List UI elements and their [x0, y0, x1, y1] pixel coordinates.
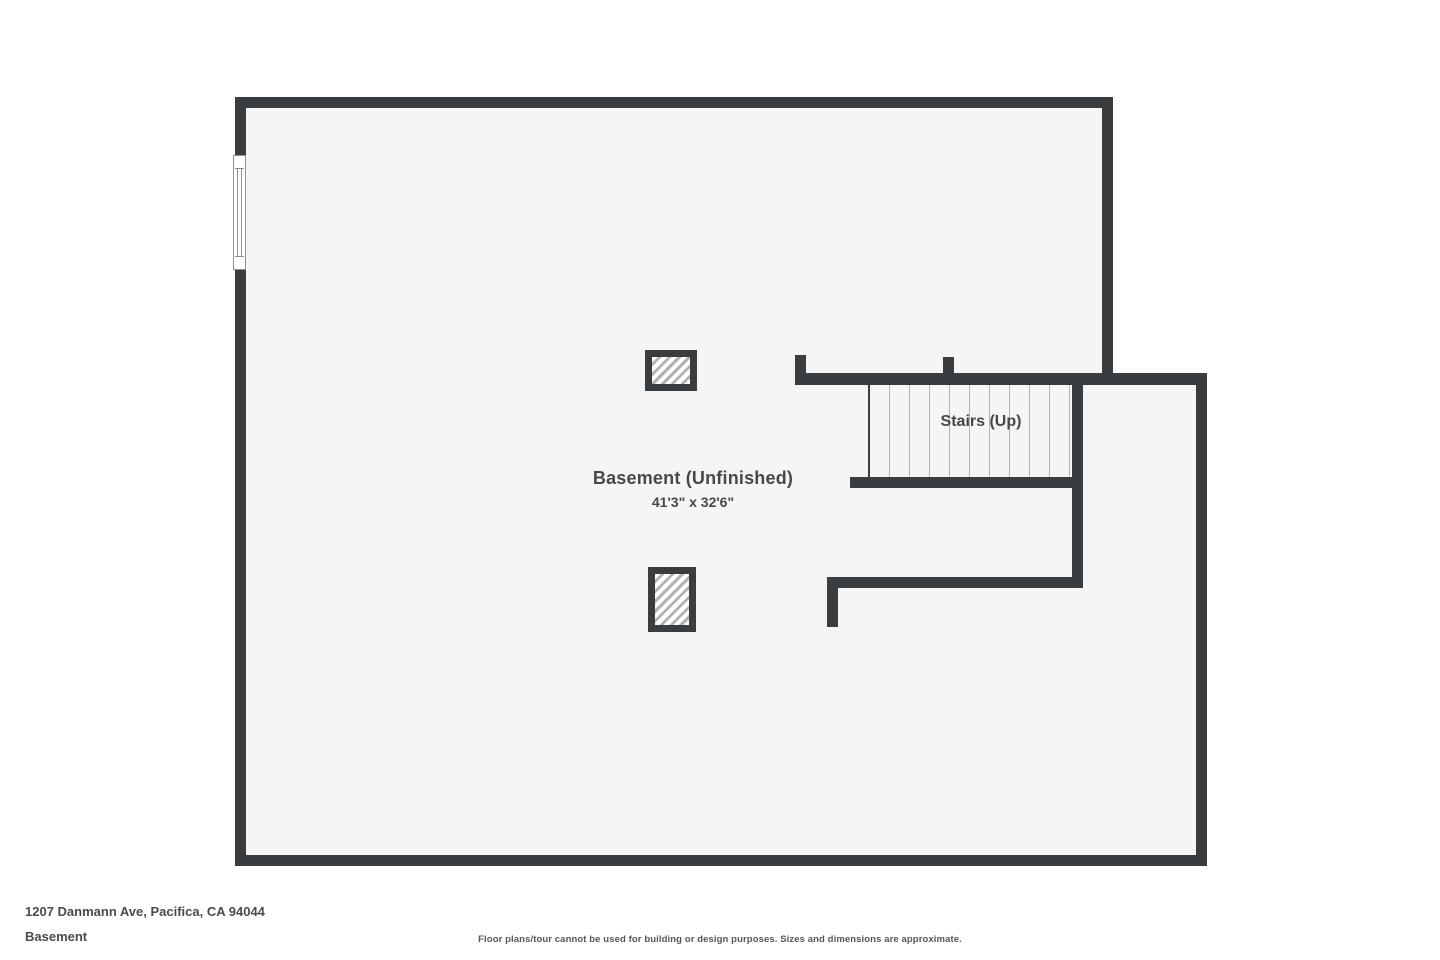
room-interior-right-extension [1102, 385, 1196, 855]
wall-exterior-bottom [235, 855, 1207, 866]
wall-stub-up-mid [943, 357, 954, 373]
wall-exterior-top [235, 97, 1113, 108]
wall-stub-up-left [795, 355, 806, 373]
window-symbol [233, 155, 246, 270]
stairs-label: Stairs (Up) [881, 413, 1081, 431]
support-post-lower [648, 567, 696, 632]
window-panes [235, 168, 244, 257]
wall-stairs-top [795, 373, 1207, 385]
wall-stub-down-left [827, 588, 838, 627]
wall-stairs-bottom [850, 477, 1073, 488]
disclaimer-text: Floor plans/tour cannot be used for buil… [0, 934, 1440, 945]
wall-exterior-right-lower [1196, 373, 1207, 866]
property-address: 1207 Danmann Ave, Pacifica, CA 94044 [25, 904, 265, 919]
stair-treads [870, 385, 1072, 477]
wall-exterior-right-upper [1102, 97, 1113, 385]
stair-edge-line [868, 385, 870, 477]
wall-lower-horizontal [827, 577, 1083, 588]
room-dimensions-label: 41'3" x 32'6" [543, 494, 843, 510]
support-post-upper [645, 350, 697, 391]
floor-plan-canvas: Basement (Unfinished) 41'3" x 32'6" Stai… [0, 0, 1440, 960]
room-name-label: Basement (Unfinished) [543, 468, 843, 489]
